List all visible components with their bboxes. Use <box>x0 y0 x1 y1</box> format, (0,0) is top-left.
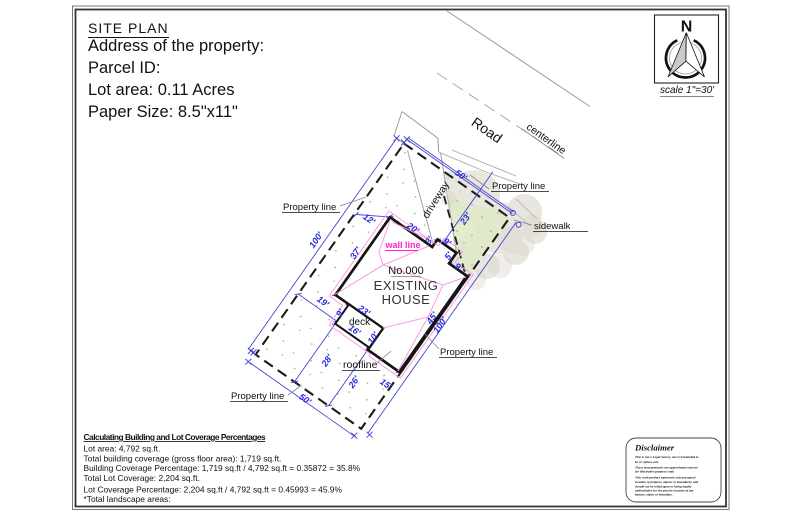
svg-text:Property line: Property line <box>440 347 493 358</box>
svg-text:Paper Size: 8.5"x11": Paper Size: 8.5"x11" <box>88 103 238 121</box>
svg-text:roofline: roofline <box>343 359 378 371</box>
svg-text:EXISTING: EXISTING <box>374 278 439 293</box>
svg-text:Property line: Property line <box>283 202 336 213</box>
svg-text:No.000: No.000 <box>388 265 423 277</box>
svg-text:scale 1"=30': scale 1"=30' <box>660 85 715 96</box>
svg-text:Lot area: 0.11 Acres: Lot area: 0.11 Acres <box>88 81 234 99</box>
svg-text:This is not a Legal Survey, no: This is not a Legal Survey, nor is it in… <box>635 455 699 459</box>
svg-text:Parcel ID:: Parcel ID: <box>88 59 160 77</box>
svg-text:Lot Coverage Percentage: 2,204: Lot Coverage Percentage: 2,204 sq.ft / 4… <box>84 485 343 495</box>
svg-text:wall line: wall line <box>385 240 421 250</box>
svg-text:sidewalk: sidewalk <box>534 221 571 232</box>
svg-text:location of features, objects: location of features, objects or boundar… <box>635 480 698 484</box>
svg-text:This work product represents o: This work product represents only presum… <box>635 476 696 480</box>
svg-text:deck: deck <box>349 317 371 328</box>
svg-text:Total Lot Coverage: 2,204 sq.f: Total Lot Coverage: 2,204 sq.ft. <box>84 473 200 483</box>
svg-text:be or replace one.: be or replace one. <box>635 460 659 464</box>
svg-text:Property line: Property line <box>492 181 545 192</box>
svg-text:Lot area: 4,792 sq.ft.: Lot area: 4,792 sq.ft. <box>84 444 161 454</box>
svg-text:feature, object or boundary.: feature, object or boundary. <box>635 493 673 497</box>
svg-text:Total building coverage (gross: Total building coverage (gross floor are… <box>84 454 282 464</box>
svg-text:Building Coverage Percentage:: Building Coverage Percentage: 1,719 sq.f… <box>84 463 361 473</box>
svg-text:*Total landscape areas:: *Total landscape areas: <box>84 494 171 504</box>
svg-text:SITE PLAN: SITE PLAN <box>88 20 169 36</box>
svg-text:Calculating Building and Lot C: Calculating Building and Lot Coverage Pe… <box>84 432 266 442</box>
svg-text:Property line: Property line <box>231 391 284 402</box>
svg-text:Disclaimer: Disclaimer <box>634 443 675 453</box>
svg-text:Address of the property:: Address of the property: <box>88 37 264 55</box>
svg-text:for illustrative purposes only: for illustrative purposes only. <box>635 470 675 474</box>
svg-text:HOUSE: HOUSE <box>382 292 431 307</box>
